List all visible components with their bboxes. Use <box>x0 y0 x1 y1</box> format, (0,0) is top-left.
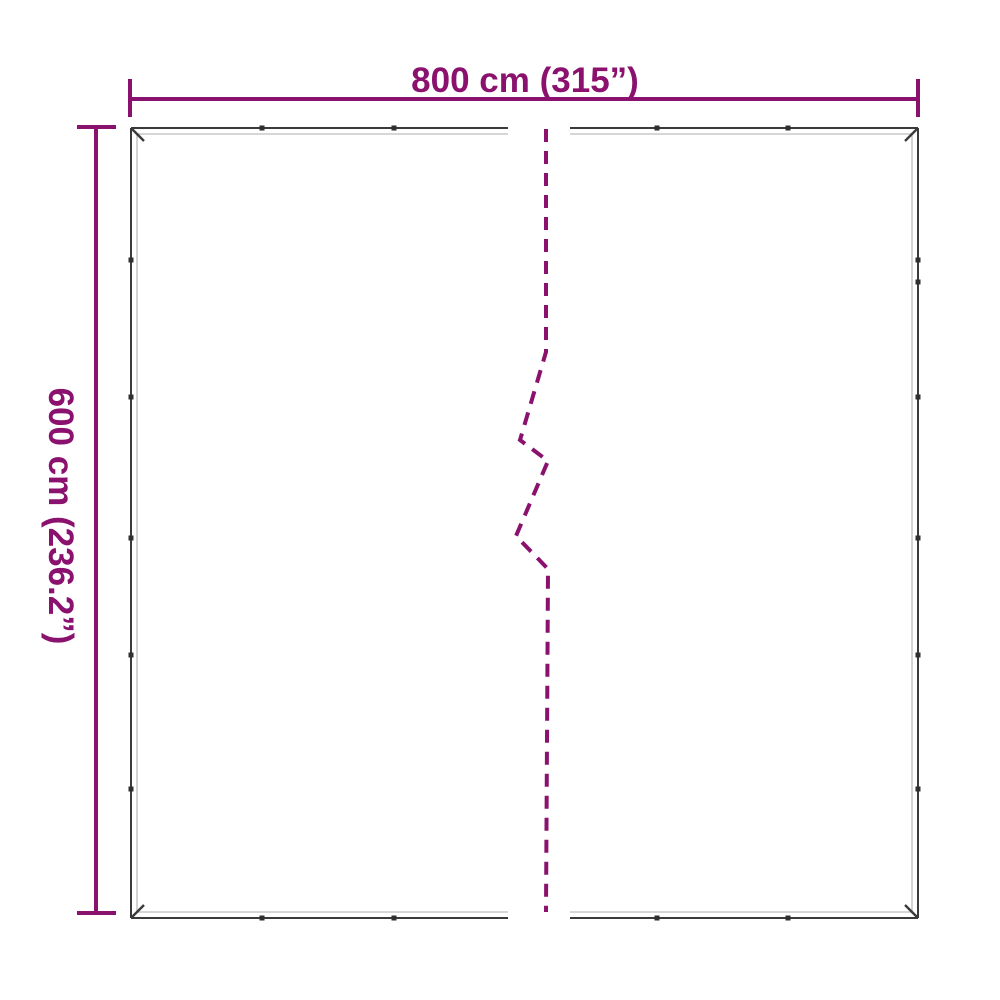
corner-fold-marks <box>132 129 917 917</box>
tarp-outline <box>131 128 918 918</box>
seam-break-dashed-line <box>516 129 548 912</box>
tarp-inner-hem-line <box>137 134 912 912</box>
tarp-drawing <box>0 0 1000 1000</box>
dimension-diagram: 800 cm (315”) 600 cm (236.2”) <box>0 0 1000 1000</box>
grommet-dots <box>129 126 921 921</box>
